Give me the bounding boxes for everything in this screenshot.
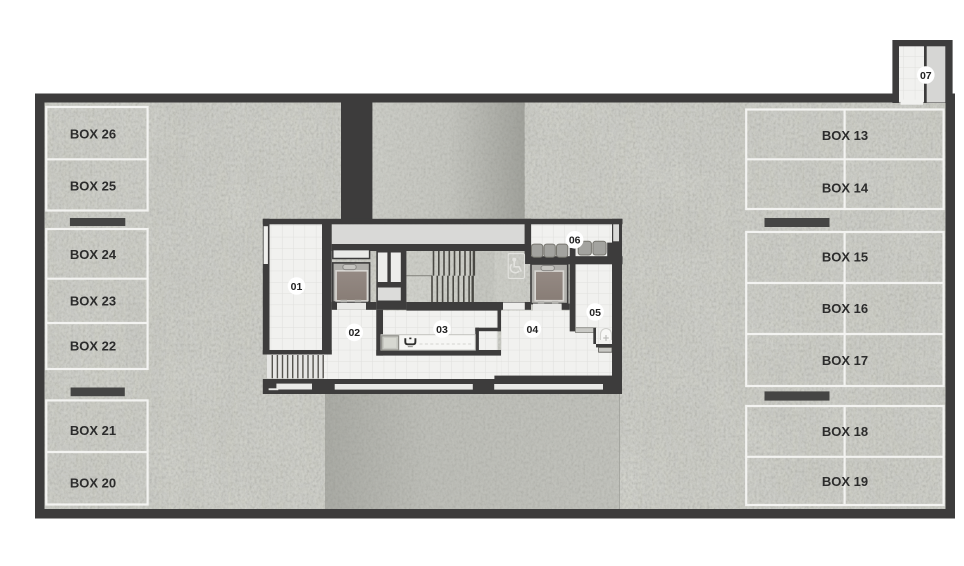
svg-text:04: 04 [527, 324, 539, 336]
svg-text:03: 03 [436, 324, 448, 336]
svg-text:BOX 14: BOX 14 [822, 180, 869, 195]
svg-text:BOX 21: BOX 21 [70, 423, 116, 438]
svg-text:BOX 19: BOX 19 [822, 474, 868, 489]
svg-text:BOX 25: BOX 25 [70, 179, 116, 194]
svg-text:BOX 16: BOX 16 [822, 301, 868, 316]
svg-text:BOX 24: BOX 24 [70, 247, 117, 262]
svg-text:06: 06 [569, 235, 581, 247]
svg-text:BOX 20: BOX 20 [70, 476, 116, 491]
svg-text:BOX 23: BOX 23 [70, 294, 116, 309]
svg-text:BOX 17: BOX 17 [822, 353, 868, 368]
svg-text:02: 02 [348, 327, 360, 339]
svg-text:BOX 18: BOX 18 [822, 424, 868, 439]
svg-text:07: 07 [920, 70, 932, 82]
svg-text:BOX 13: BOX 13 [822, 128, 868, 143]
svg-text:BOX 15: BOX 15 [822, 250, 868, 265]
svg-text:01: 01 [291, 281, 303, 293]
svg-text:BOX 26: BOX 26 [70, 127, 116, 142]
svg-text:BOX 22: BOX 22 [70, 339, 116, 354]
svg-text:05: 05 [589, 307, 601, 319]
